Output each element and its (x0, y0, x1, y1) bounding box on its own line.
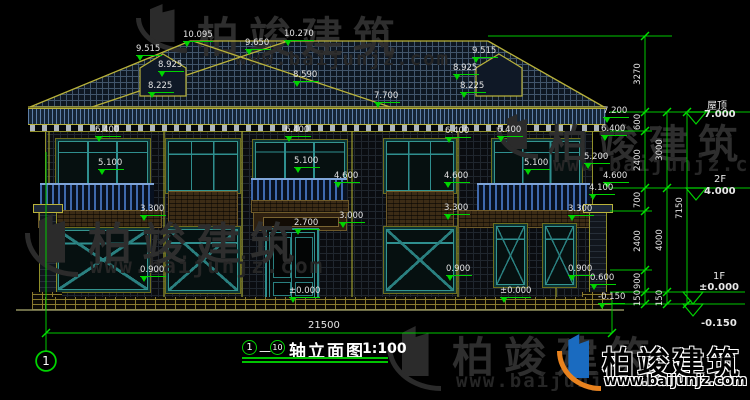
dim-annotation: ±0.000 (500, 287, 531, 298)
dim-annotation: 6.400 (285, 126, 311, 137)
dim-annotation: 3.300 (444, 204, 470, 215)
level-value: ±0.000 (699, 282, 739, 293)
dim-chain-label: 2400 (633, 230, 643, 252)
dim-annotation: 3.000 (339, 212, 365, 223)
dim-chain-label: 2400 (633, 149, 643, 171)
dim-chain-label: 4000 (655, 229, 665, 251)
dim-annotation: 10.270 (284, 30, 314, 41)
dim-annotation: 2.700 (294, 219, 320, 230)
dim-annotation: 6.400 (601, 125, 627, 136)
dim-annotation: 10.095 (183, 31, 213, 42)
dim-annotation: 7.700 (374, 92, 400, 103)
dim-annotation: 8.925 (453, 64, 479, 75)
level-value: 4.000 (704, 186, 736, 197)
dim-annotation: 8.225 (148, 82, 174, 93)
dim-annotation: 0.900 (446, 265, 472, 276)
dim-annotation: 5.100 (98, 159, 124, 170)
drawing-scale: 1:100 (362, 341, 407, 357)
title-underline (242, 361, 388, 363)
title-axis-end-bubble: 10 (270, 340, 285, 355)
cad-elevation-drawing: 柏竣建筑 www.baijunjz.com 柏竣建筑 www.baijunjz.… (0, 0, 750, 400)
overall-width-dim: 21500 (308, 320, 340, 331)
dim-chain-label: 900 (633, 273, 643, 289)
dim-annotation: 9.515 (136, 45, 162, 56)
dim-annotation: 9.650 (245, 39, 271, 50)
dim-annotation: 8.925 (158, 61, 184, 72)
dim-annotation: 3.300 (140, 205, 166, 216)
title-underline (242, 357, 388, 359)
dim-chain-label: 150 (633, 290, 643, 306)
level-label: 2F (714, 174, 726, 185)
dim-annotation: 0.600 (590, 274, 616, 285)
baijun-logo (556, 334, 600, 392)
dim-annotation: 4.600 (444, 172, 470, 183)
dim-annotation: -0.150 (598, 293, 625, 304)
axis-bubble-1: 1 (36, 351, 56, 371)
dim-annotation: 5.100 (294, 157, 320, 168)
dim-annotation: 5.200 (584, 153, 610, 164)
dim-annotation: 8.225 (460, 82, 486, 93)
dim-chain-label: 7150 (675, 197, 685, 219)
dim-annotation: 4.100 (589, 184, 615, 195)
dim-chain-label: 3270 (633, 63, 643, 85)
dim-annotation: ±0.000 (289, 287, 320, 298)
dim-annotation: 4.600 (603, 172, 629, 183)
dim-annotation: 9.515 (472, 47, 498, 58)
dim-annotation: 6.400 (445, 127, 471, 138)
dim-annotation: 8.590 (293, 71, 319, 82)
dim-annotation: 3.300 (568, 205, 594, 216)
level-label: 1F (713, 271, 725, 282)
dim-annotation: 6.400 (95, 126, 121, 137)
level-value: 7.000 (704, 109, 736, 120)
dim-annotation: 6.400 (497, 126, 523, 137)
dim-annotation: 4.600 (334, 172, 360, 183)
dim-chain-label: 3000 (655, 139, 665, 161)
dim-chain-label: 150 (655, 290, 665, 306)
dim-chain-label: 700 (633, 191, 643, 207)
dim-chain-label: 600 (633, 113, 643, 129)
dim-annotation: 7.200 (603, 107, 629, 118)
title-axis-start-bubble: 1 (242, 340, 257, 355)
dim-annotation: 5.100 (524, 159, 550, 170)
dim-annotation: 0.900 (140, 266, 166, 277)
level-value: -0.150 (701, 318, 737, 329)
brand-website: www.baijunjz.com (604, 373, 747, 389)
